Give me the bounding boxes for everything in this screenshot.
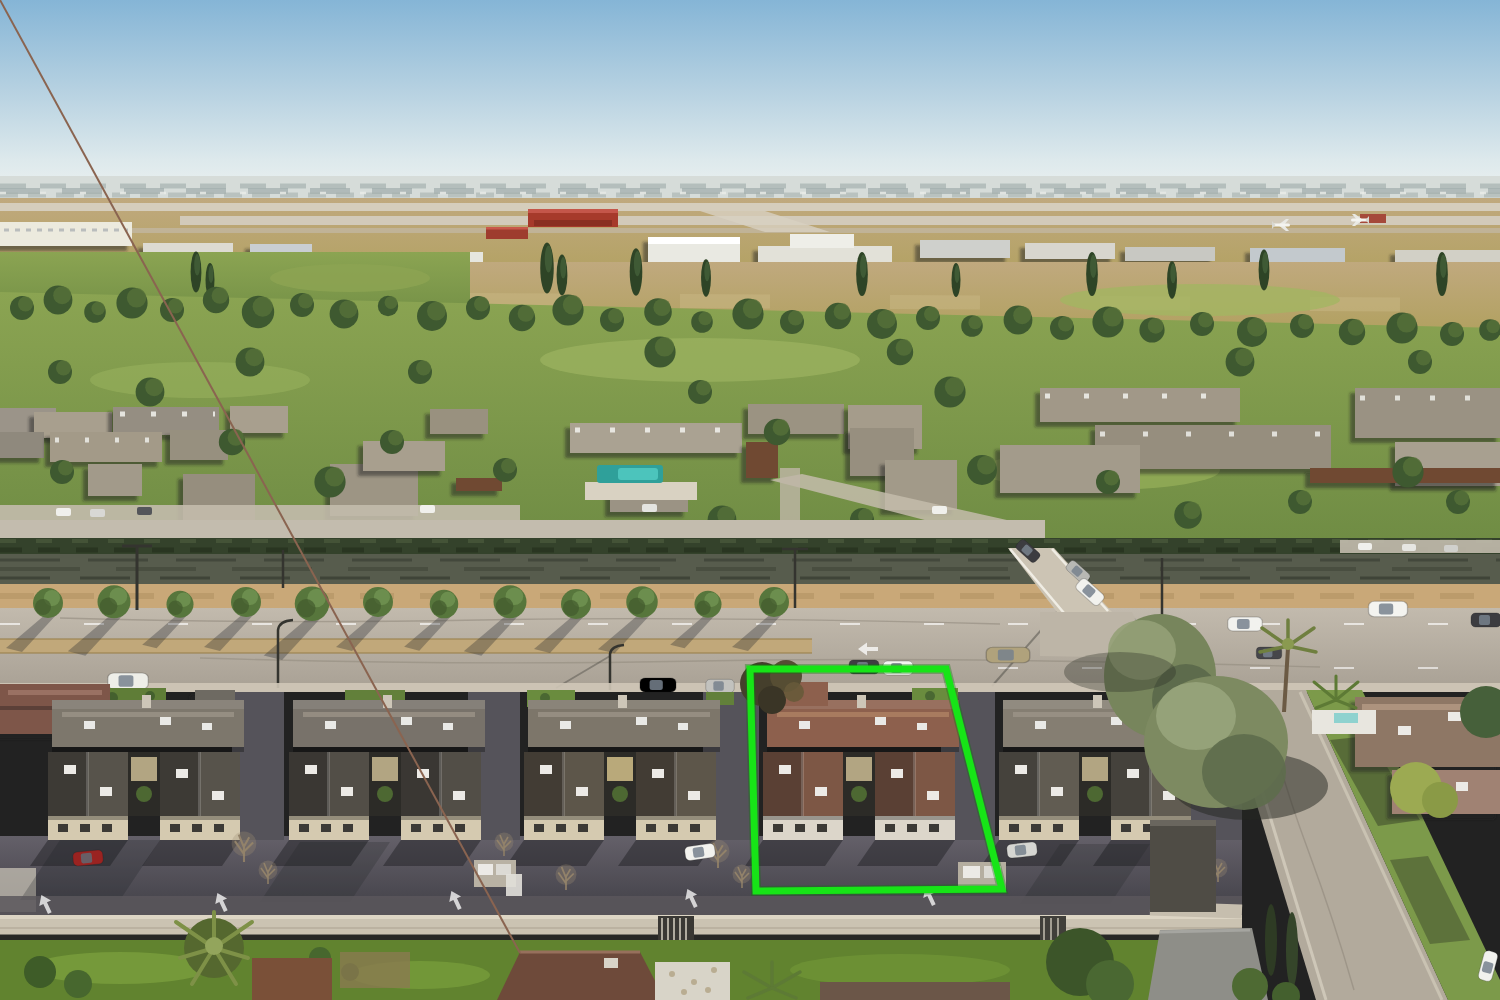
parked-van bbox=[640, 678, 676, 692]
cypress-tree bbox=[1265, 904, 1277, 976]
dark-suv bbox=[1471, 613, 1500, 627]
small-pool bbox=[1334, 713, 1358, 723]
bottom-roof bbox=[820, 982, 1010, 1000]
pickup-truck bbox=[986, 647, 1030, 662]
white-car bbox=[1228, 617, 1263, 631]
parked-car bbox=[706, 679, 735, 692]
silver-parked-car bbox=[1006, 841, 1037, 858]
runway bbox=[0, 203, 1500, 233]
white-suv bbox=[1369, 601, 1408, 616]
camper-truck bbox=[108, 673, 149, 689]
shed-roof bbox=[252, 958, 332, 1000]
dirt-patch bbox=[340, 952, 410, 988]
aerial-photo bbox=[0, 0, 1500, 1000]
aerial-photo-canvas bbox=[0, 0, 1500, 1000]
cypress-tree bbox=[1286, 912, 1298, 988]
rear-drive-lane bbox=[0, 896, 1242, 918]
horizon-haze bbox=[0, 176, 1500, 200]
sky bbox=[0, 0, 1500, 200]
